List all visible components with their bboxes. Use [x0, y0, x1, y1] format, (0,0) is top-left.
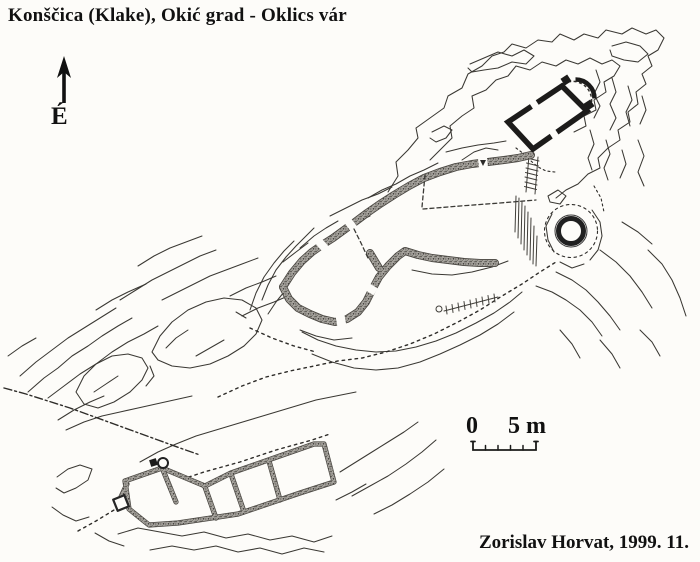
scale-bar	[471, 442, 538, 451]
west-round-turret	[158, 458, 168, 468]
upper-castle-chapel	[505, 74, 595, 152]
outer-ward-building	[113, 444, 334, 525]
enclosure-interior-partitions	[354, 175, 536, 258]
rock-scarp-hachure	[436, 155, 539, 314]
round-tower	[555, 215, 587, 247]
site-plan-page: Konščica (Klake), Okić grad - Oklics vár…	[0, 0, 700, 562]
north-arrow-icon	[57, 56, 71, 103]
main-enclosure-wall	[283, 155, 531, 322]
wall-door-gaps	[315, 157, 488, 327]
west-turret-block	[149, 458, 158, 467]
castle-ground-plan-drawing	[0, 0, 700, 562]
